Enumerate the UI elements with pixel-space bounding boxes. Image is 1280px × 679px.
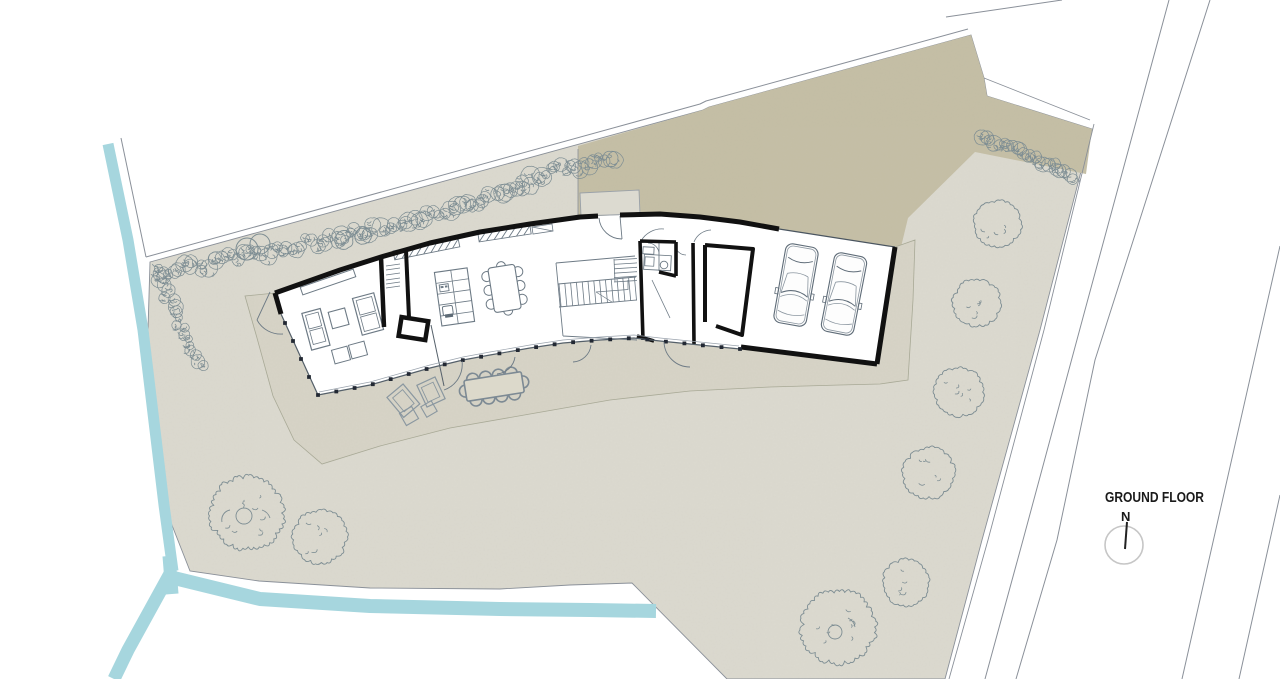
svg-text:GROUND FLOOR: GROUND FLOOR	[1105, 490, 1204, 506]
svg-text:N: N	[1121, 509, 1130, 524]
